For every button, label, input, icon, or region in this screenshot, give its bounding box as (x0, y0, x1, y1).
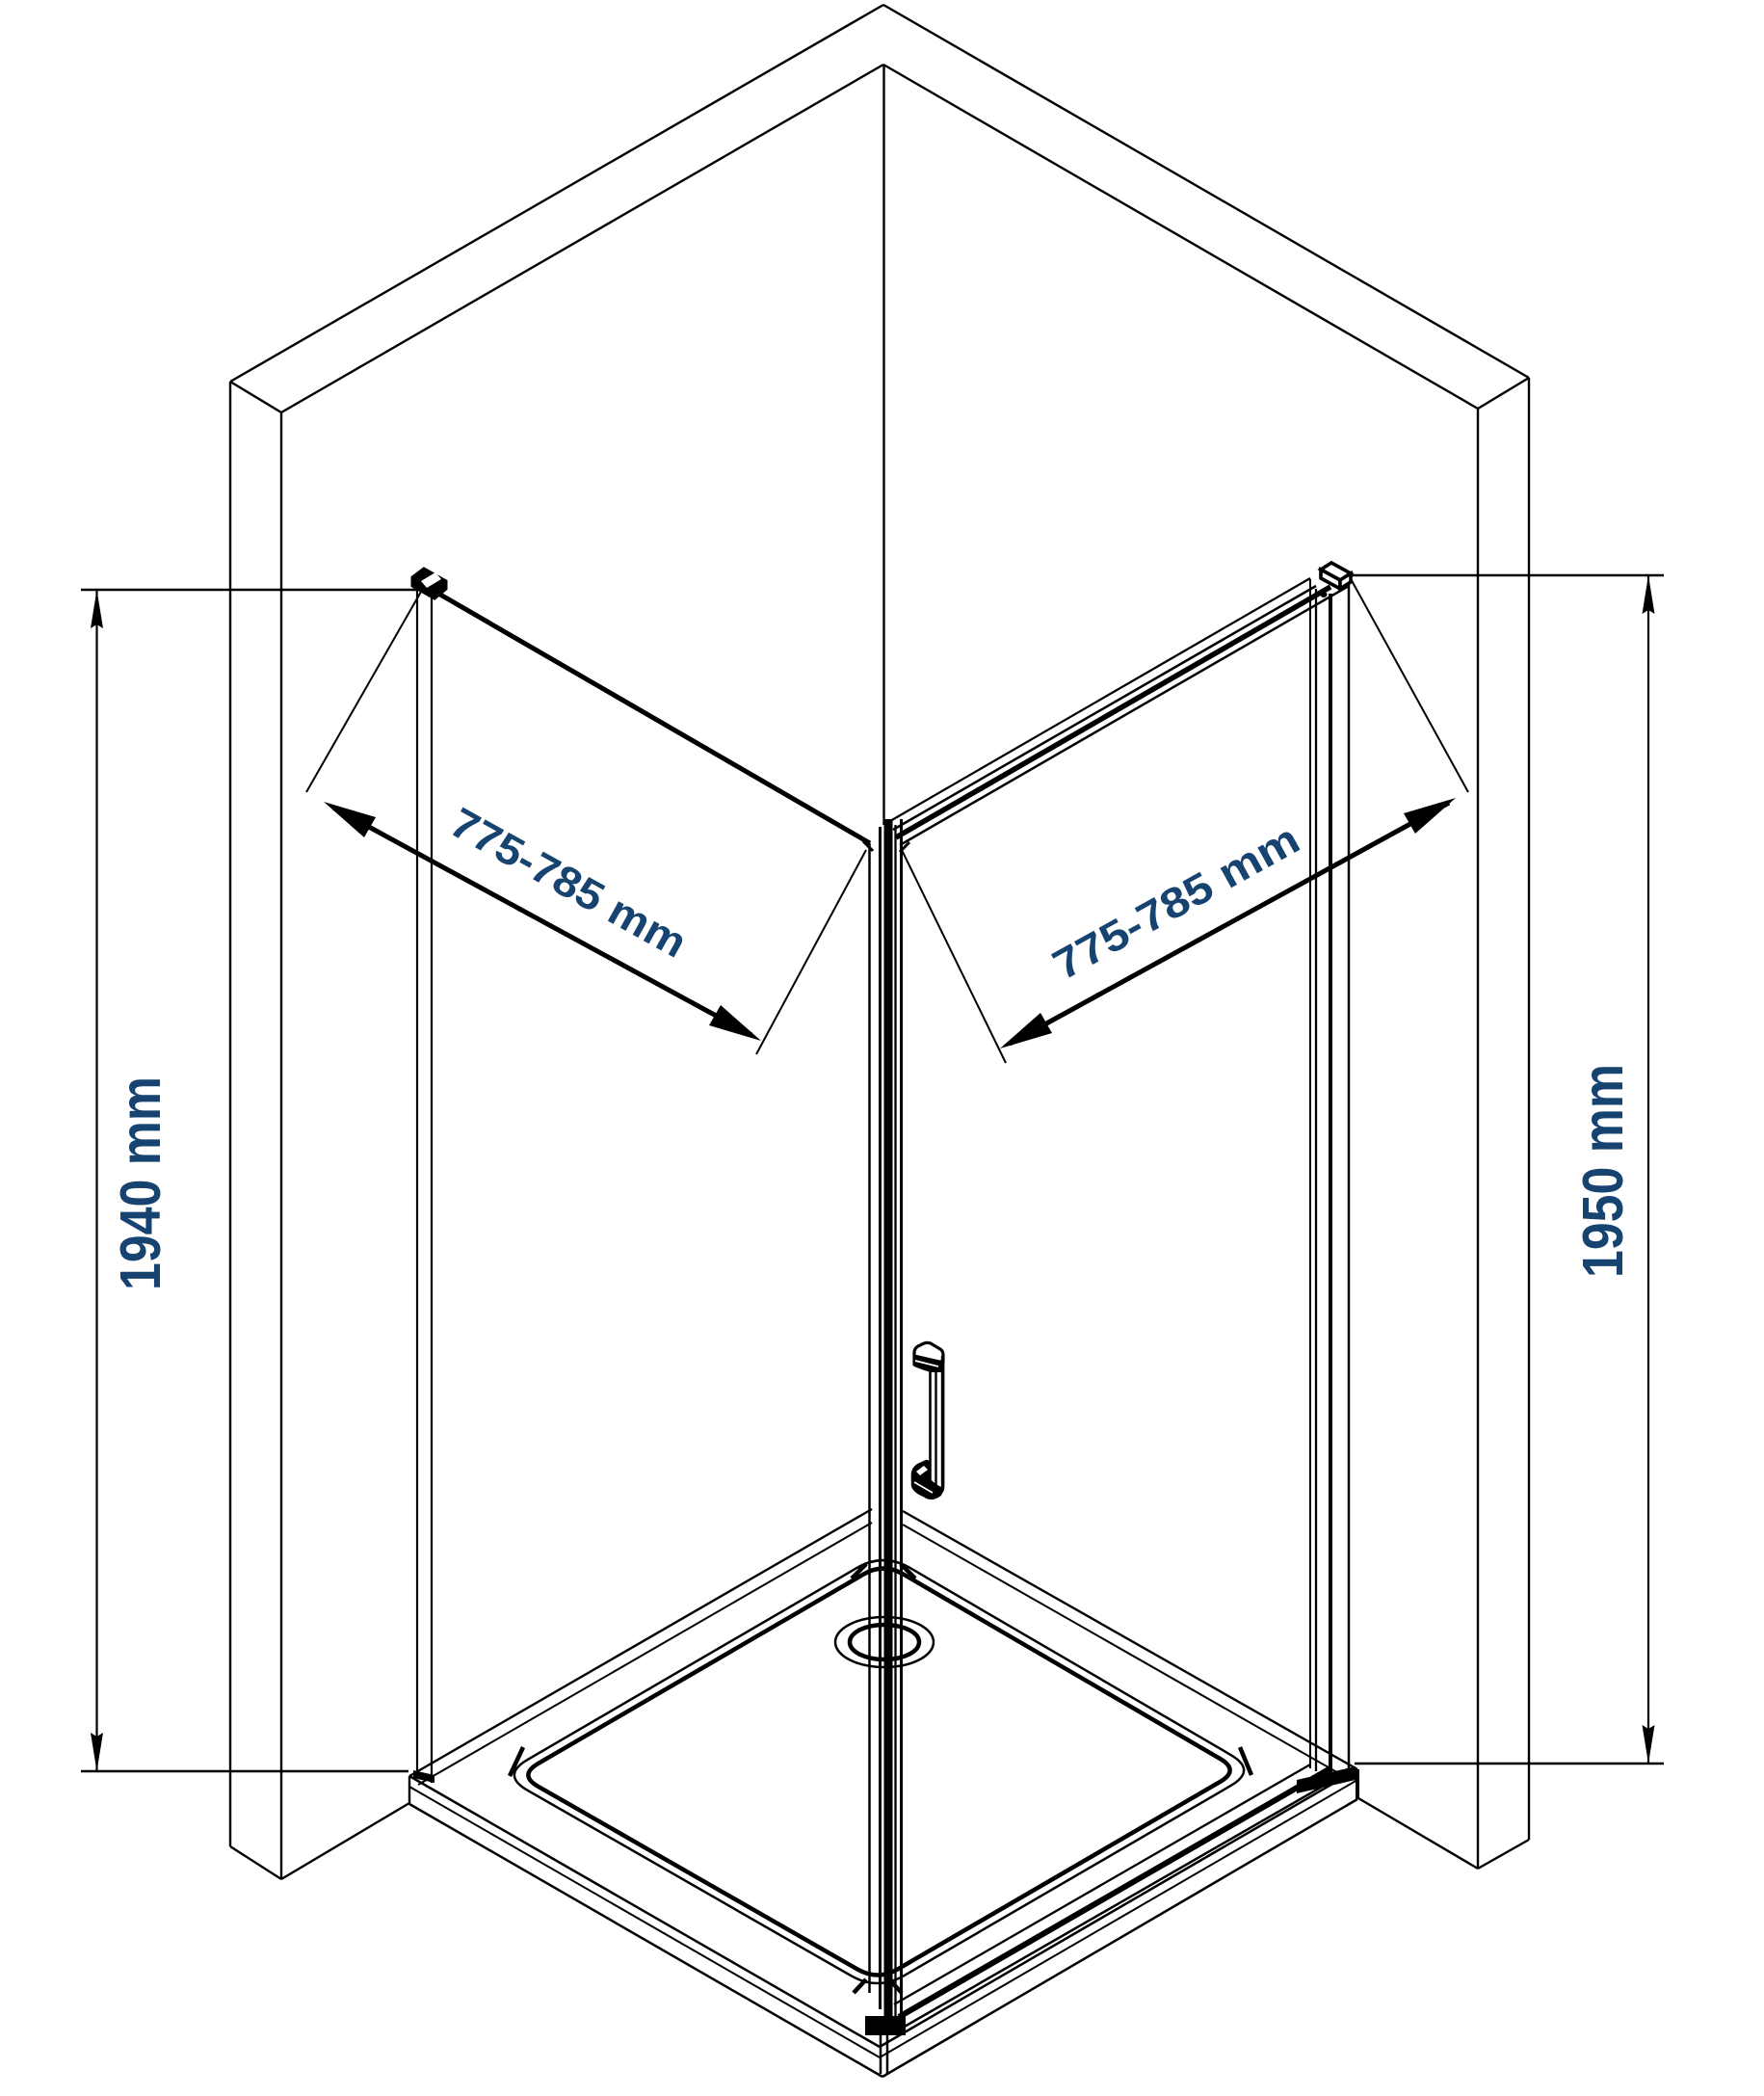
svg-text:1940 mm: 1940 mm (109, 1076, 172, 1290)
svg-text:1950 mm: 1950 mm (1571, 1064, 1635, 1278)
